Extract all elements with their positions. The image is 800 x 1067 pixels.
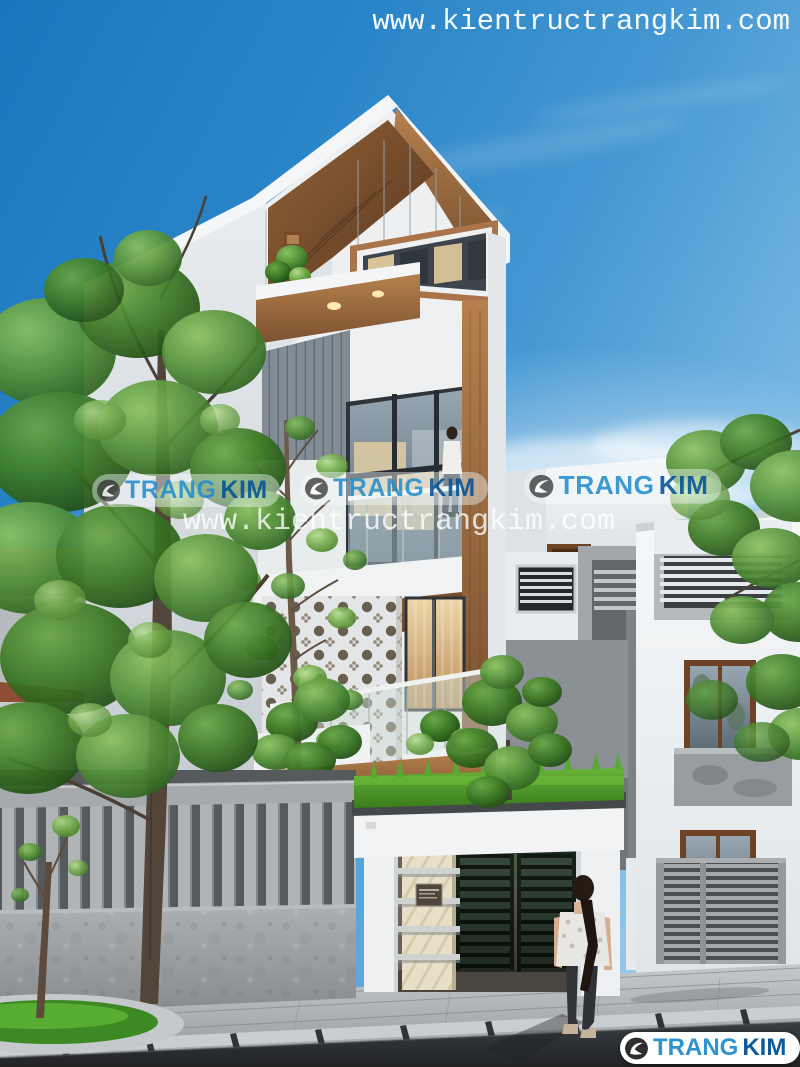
- fence-slats: [0, 802, 356, 920]
- gate-plaque: [416, 884, 442, 906]
- gate-pillar-left: [364, 850, 398, 992]
- logo-text-trang: TRANG: [333, 474, 424, 503]
- logo-text-kim: KIM: [428, 474, 475, 503]
- marble-pillar: [398, 848, 460, 990]
- trangkim-watermark-logo: TRANGKIM: [92, 474, 280, 507]
- watermark-center-url: www.kientructrangkim.com: [183, 505, 615, 539]
- logo-text-kim: KIM: [220, 476, 267, 505]
- trangkim-swoosh-icon: [304, 476, 329, 501]
- watermark-top-url: www.kientructrangkim.com: [372, 5, 790, 38]
- downlight: [327, 302, 341, 310]
- logo-text-kim: KIM: [659, 471, 709, 501]
- logo-text-trang: TRANG: [653, 1034, 738, 1062]
- trangkim-logo-badge: TRANGKIM: [620, 1032, 800, 1064]
- trangkim-swoosh-icon: [96, 478, 121, 503]
- right-slat-fence: [656, 856, 786, 964]
- architectural-render: www.kientructrangkim.com TRANGKIM TRANGK…: [0, 0, 800, 1067]
- woman-head: [572, 875, 594, 901]
- trangkim-watermark-logo: TRANGKIM: [524, 469, 721, 504]
- logo-text-trang: TRANG: [559, 471, 655, 501]
- downlight: [372, 291, 384, 298]
- trangkim-watermark-logo: TRANGKIM: [300, 472, 488, 505]
- boundary-fence: [0, 770, 356, 1014]
- trangkim-swoosh-icon: [624, 1036, 649, 1061]
- logo-text-trang: TRANG: [125, 476, 216, 505]
- gate-lamp: [366, 822, 376, 829]
- logo-text-kim: KIM: [742, 1034, 786, 1062]
- trangkim-swoosh-icon: [528, 473, 554, 499]
- louver-screen-small: [517, 566, 575, 612]
